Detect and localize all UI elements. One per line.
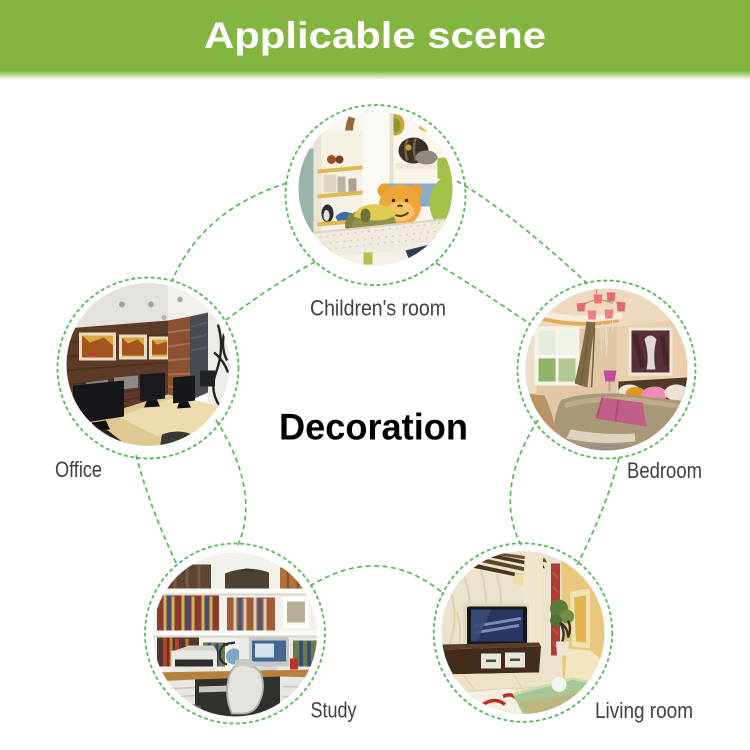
svg-text:Decoration: Decoration <box>279 407 468 448</box>
svg-text:Living room: Living room <box>595 698 693 723</box>
svg-text:Applicable scene: Applicable scene <box>204 15 546 56</box>
svg-text:Bedroom: Bedroom <box>627 458 702 483</box>
svg-text:Office: Office <box>55 457 102 482</box>
svg-text:Study: Study <box>311 698 357 723</box>
svg-text:Children's room: Children's room <box>310 296 446 321</box>
